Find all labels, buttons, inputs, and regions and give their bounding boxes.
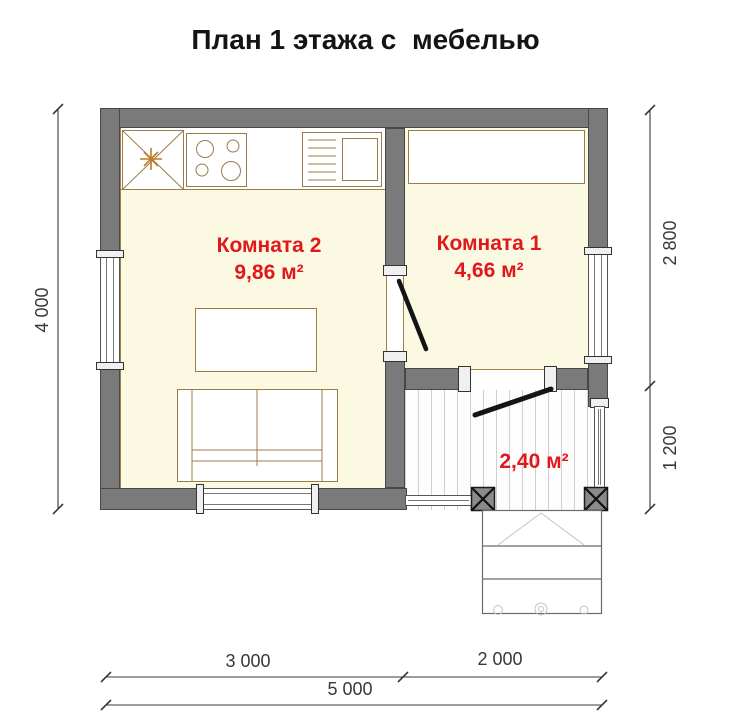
- sill-left-window-bottom: [96, 362, 124, 370]
- wall-bottom-left: [100, 488, 200, 510]
- kitchen-counter: [121, 127, 386, 190]
- page-title: План 1 этажа с мебелью: [0, 24, 731, 56]
- window-bottom: [200, 488, 315, 510]
- porch-railing-right: [594, 406, 605, 488]
- dim-right-upper: 2 800: [659, 183, 681, 303]
- jamb-entrance-door-left: [458, 366, 471, 392]
- sill-bottom-window-right: [311, 484, 319, 514]
- wall-right-upper: [588, 108, 608, 253]
- sill-bottom-window-left: [196, 484, 204, 514]
- room1-name: Комната 1: [389, 230, 589, 257]
- steps-icon: [483, 511, 602, 616]
- dim-bottom-right: 2 000: [440, 648, 560, 670]
- dim-left-total: 4 000: [31, 250, 53, 370]
- room1-label: Комната 1 4,66 м²: [389, 230, 589, 284]
- porch-railing-bottom: [405, 495, 472, 506]
- wall-interior-horizontal-left: [405, 368, 465, 390]
- jamb-entrance-door-right: [544, 366, 557, 392]
- room2-name: Комната 2: [169, 232, 369, 259]
- room1-area: 4,66 м²: [389, 257, 589, 284]
- dim-bottom-total: 5 000: [290, 678, 410, 700]
- dim-bottom-left: 3 000: [188, 650, 308, 672]
- wall-top: [100, 108, 608, 128]
- window-right: [588, 252, 608, 359]
- sill-right-window-bottom: [584, 356, 612, 364]
- wall-bottom-right: [315, 488, 407, 510]
- floor-plan-page: План 1 этажа с мебелью: [0, 0, 731, 717]
- room2-label: Комната 2 9,86 м²: [169, 232, 369, 286]
- jamb-interior-door-bottom: [383, 351, 407, 362]
- wall-interior-vertical-lower: [385, 352, 405, 488]
- porch-area-label: 2,40 м²: [454, 448, 614, 475]
- window-left: [100, 255, 120, 365]
- wall-left-upper: [100, 108, 120, 255]
- dim-right-lower: 1 200: [659, 388, 681, 508]
- room2-area: 9,86 м²: [169, 259, 369, 286]
- sill-left-window-top: [96, 250, 124, 258]
